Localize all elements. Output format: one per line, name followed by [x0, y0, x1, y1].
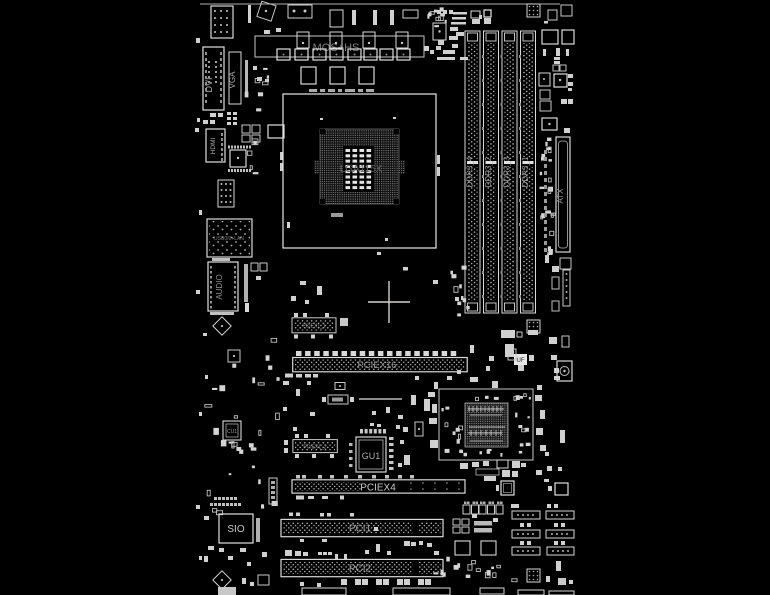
svg-text:DDR3_1: DDR3_1	[521, 156, 530, 187]
svg-text:PCIEX1_1: PCIEX1_1	[302, 324, 326, 330]
svg-text:GU1: GU1	[362, 451, 381, 461]
svg-text:DDR3_2: DDR3_2	[484, 156, 493, 187]
svg-text:PCIEX16: PCIEX16	[357, 360, 396, 371]
svg-text:LGA115X: LGA115X	[340, 164, 383, 175]
svg-text:ATX: ATX	[556, 188, 565, 204]
svg-text:USB0/0+LAN: USB0/0+LAN	[214, 236, 244, 242]
svg-text:DDR3_4: DDR3_4	[466, 156, 475, 187]
svg-text:UF: UF	[517, 358, 525, 364]
svg-text:AUDIO: AUDIO	[215, 274, 224, 299]
svg-text:SIO: SIO	[227, 524, 244, 535]
svg-text:VGA: VGA	[228, 71, 237, 89]
svg-text:CU1: CU1	[227, 429, 237, 435]
svg-text:PCI1: PCI1	[349, 523, 372, 534]
svg-text:PCI2: PCI2	[349, 563, 372, 574]
svg-text:HDMI: HDMI	[210, 138, 217, 155]
svg-text:PCIEX4: PCIEX4	[360, 483, 396, 494]
svg-text:PCIEX1_2: PCIEX1_2	[303, 445, 327, 451]
svg-text:DDR3_3: DDR3_3	[503, 156, 512, 187]
